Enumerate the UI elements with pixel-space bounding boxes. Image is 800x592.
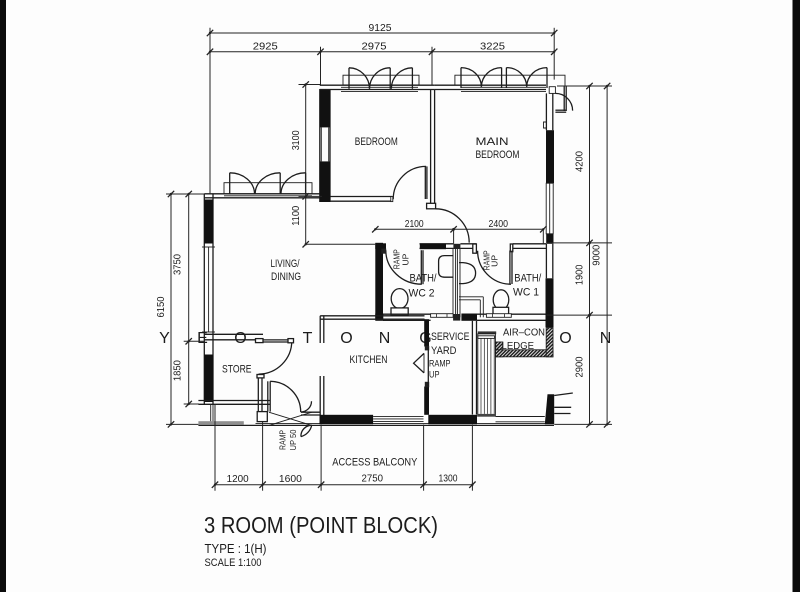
svg-text:E: E xyxy=(197,330,208,347)
svg-text:O: O xyxy=(559,330,571,347)
svg-text:SCALE 1:100: SCALE 1:100 xyxy=(205,557,262,569)
svg-text:DINING: DINING xyxy=(271,271,301,283)
svg-text:BATH/: BATH/ xyxy=(410,273,438,285)
svg-text:BATH/: BATH/ xyxy=(514,273,542,285)
svg-text:1900: 1900 xyxy=(574,264,585,285)
svg-text:N: N xyxy=(379,330,391,347)
svg-text:BEDROOM: BEDROOM xyxy=(355,136,398,148)
svg-text:1100: 1100 xyxy=(291,205,302,225)
svg-text:Y: Y xyxy=(159,330,170,347)
svg-text:O: O xyxy=(340,330,352,347)
svg-text:UP: UP xyxy=(429,370,440,380)
svg-text:2750: 2750 xyxy=(362,474,384,485)
svg-text:6150: 6150 xyxy=(156,296,167,317)
svg-text:3750: 3750 xyxy=(173,254,184,275)
svg-text:UP: UP xyxy=(490,255,500,267)
svg-text:RAMP: RAMP xyxy=(278,430,288,450)
svg-text:STORE: STORE xyxy=(222,364,252,376)
svg-text:UP 50: UP 50 xyxy=(288,429,298,450)
svg-text:LIVING/: LIVING/ xyxy=(271,258,301,270)
svg-text:MAIN: MAIN xyxy=(476,136,509,148)
svg-text:BEDROOM: BEDROOM xyxy=(476,149,520,161)
svg-text:RAMP: RAMP xyxy=(429,359,451,369)
svg-text:2100: 2100 xyxy=(405,219,424,230)
svg-text:2900: 2900 xyxy=(574,356,585,377)
svg-text:WC 1: WC 1 xyxy=(513,287,539,299)
svg-text:N: N xyxy=(600,330,612,347)
svg-text:ACCESS BALCONY: ACCESS BALCONY xyxy=(332,457,418,469)
svg-text:3 ROOM (POINT BLOCK): 3 ROOM (POINT BLOCK) xyxy=(204,512,438,538)
svg-text:YARD: YARD xyxy=(431,345,457,357)
svg-text:9000: 9000 xyxy=(591,244,602,265)
svg-text:T: T xyxy=(303,330,313,347)
svg-text:2925: 2925 xyxy=(253,42,278,53)
svg-text:3100: 3100 xyxy=(291,130,302,150)
svg-text:TYPE : 1(H): TYPE : 1(H) xyxy=(205,541,267,556)
svg-text:9125: 9125 xyxy=(369,23,392,34)
svg-text:1850: 1850 xyxy=(173,360,184,381)
svg-text:4200: 4200 xyxy=(574,151,585,172)
svg-text:SERVICE: SERVICE xyxy=(431,331,470,343)
svg-text:AIR–CON: AIR–CON xyxy=(503,327,545,339)
svg-text:2975: 2975 xyxy=(362,42,387,53)
svg-text:WC 2: WC 2 xyxy=(409,288,435,300)
svg-text:KITCHEN: KITCHEN xyxy=(350,354,388,366)
svg-text:1300: 1300 xyxy=(439,474,458,485)
svg-text:O: O xyxy=(234,330,246,347)
svg-text:LEDGE: LEDGE xyxy=(502,340,535,352)
svg-text:3225: 3225 xyxy=(480,42,505,53)
svg-text:UP: UP xyxy=(400,253,410,265)
svg-text:1600: 1600 xyxy=(279,474,302,485)
svg-text:1200: 1200 xyxy=(227,474,249,485)
svg-text:2400: 2400 xyxy=(489,219,509,230)
